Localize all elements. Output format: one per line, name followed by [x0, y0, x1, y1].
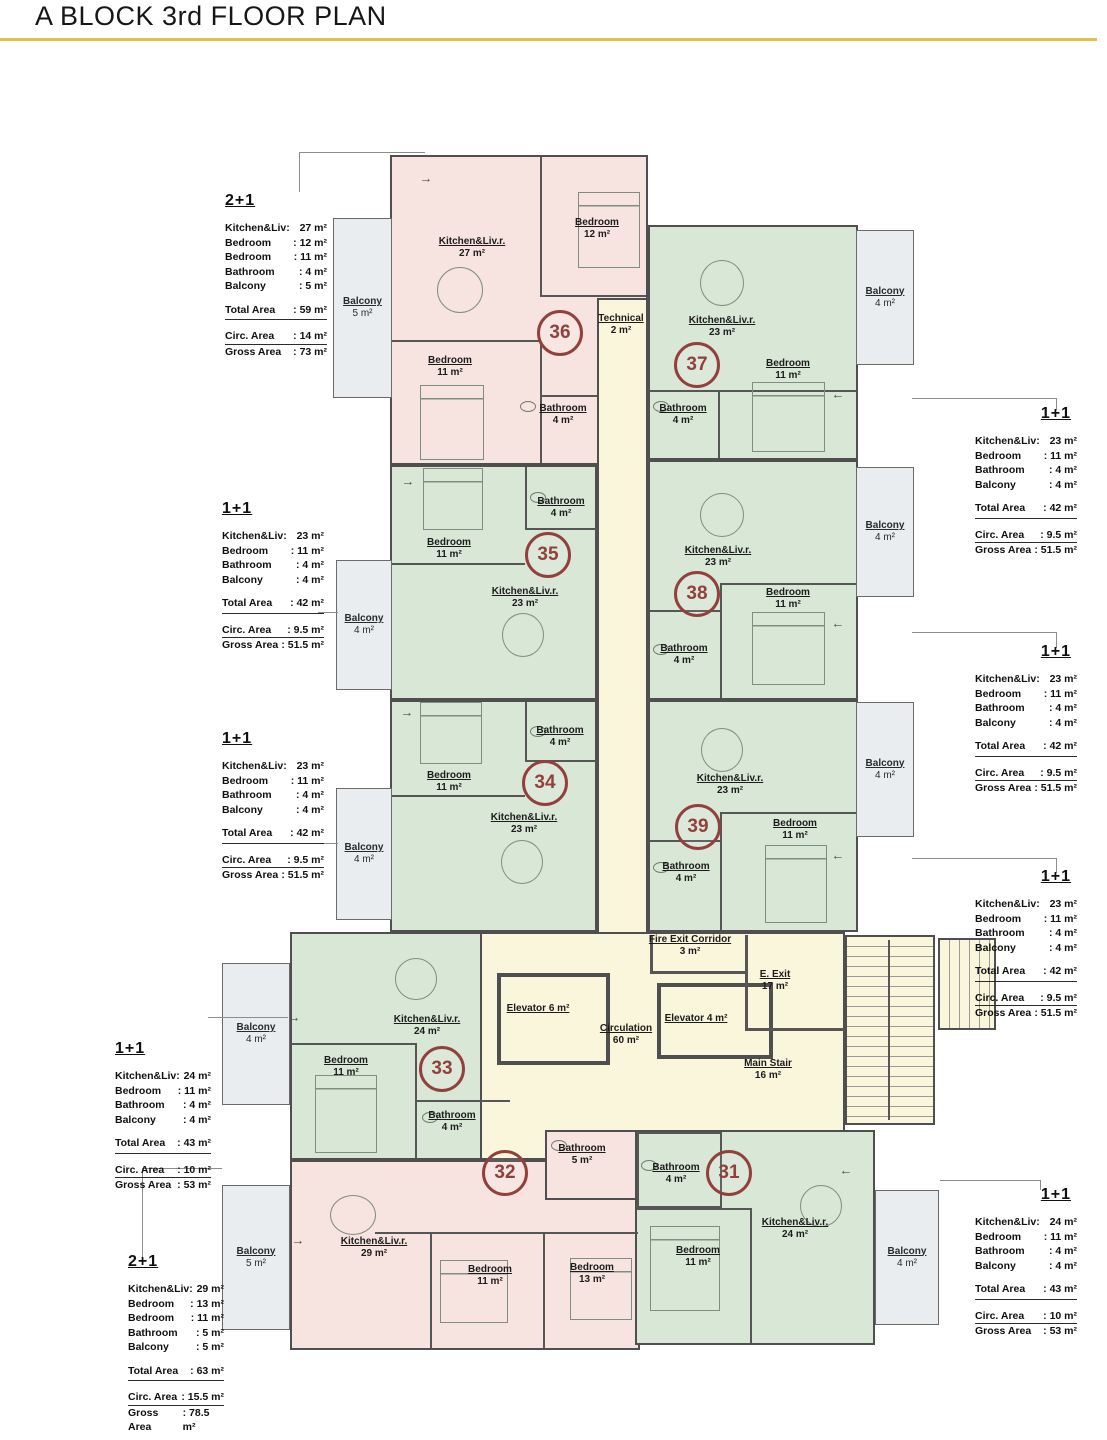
unit-number-38: 38 [674, 571, 720, 617]
balcony-label: Balcony 4 m² [866, 758, 905, 782]
room-area-text: 24 m² [394, 1026, 461, 1038]
room-label-u38-bedroom: Bedroom 11 m² [766, 587, 810, 611]
room-label-u31-kitchen: Kitchen&Liv.r. 24 m² [762, 1217, 829, 1241]
spec-value: : 4 m² [1049, 716, 1077, 731]
room-name-text: Bathroom [539, 403, 586, 415]
spec-value: : 11 m² [291, 774, 324, 789]
spec-total-row: Total Area: 59 m² [225, 303, 327, 321]
corridor-region [597, 298, 648, 935]
wall-segment [525, 702, 527, 762]
spec-value: : 42 m² [290, 596, 324, 611]
spec-value: : 15.5 m² [181, 1390, 224, 1405]
room-label-u36-bathroom: Bathroom 4 m² [539, 403, 586, 427]
entry-arrow-icon: → [420, 171, 433, 186]
room-name-text: Kitchen&Liv.r. [685, 545, 752, 557]
unit-type-label: 1+1 [222, 500, 324, 518]
unit-number-33: 33 [419, 1046, 465, 1092]
entry-arrow-icon: ← [832, 848, 845, 863]
room-name-text: Bathroom [662, 861, 709, 873]
spec-value: : 4 m² [296, 788, 324, 803]
spec-value: : 4 m² [183, 1113, 211, 1128]
spec-value: 23 m² [1050, 897, 1077, 912]
spec-value: : 5 m² [299, 279, 327, 294]
spec-value: : 4 m² [296, 558, 324, 573]
unit-type-label: 1+1 [222, 730, 324, 748]
balcony-area-text: 4 m² [345, 854, 384, 866]
spec-gross-row: Gross Area: 78.5 m² [128, 1406, 224, 1435]
spec-label: Kitchen&Liv: [225, 221, 290, 236]
spec-value: : 42 m² [1043, 501, 1077, 516]
room-area-text: 24 m² [762, 1229, 829, 1241]
spec-row: Balcony: 4 m² [115, 1113, 211, 1128]
spec-row: Bathroom: 5 m² [128, 1326, 224, 1341]
spec-label: Kitchen&Liv: [975, 897, 1040, 912]
spec-row: Bathroom: 4 m² [222, 788, 324, 803]
spec-box-unit36: 2+1 Kitchen&Liv:27 m² Bedroom: 12 m² Bed… [225, 192, 327, 359]
room-name-text: Bathroom [659, 403, 706, 415]
room-area-text: 13 m² [570, 1274, 614, 1286]
spec-value: : 11 m² [178, 1084, 211, 1099]
spec-value: 23 m² [297, 759, 324, 774]
spec-label: Bathroom [222, 558, 272, 573]
spec-label: Bathroom [115, 1098, 165, 1113]
balcony-name-text: Balcony [866, 758, 905, 770]
spec-value: 23 m² [1050, 672, 1077, 687]
spec-label: Bedroom [975, 1230, 1021, 1245]
unit-type-label: 1+1 [115, 1040, 211, 1058]
room-area-text: 12 m² [575, 229, 619, 241]
entry-arrow-icon: ← [832, 616, 845, 631]
spec-row: Kitchen&Liv:23 m² [975, 672, 1077, 687]
spec-label: Gross Area [225, 345, 281, 360]
unit-type-label: 1+1 [975, 405, 1077, 423]
wall-segment [392, 340, 540, 342]
spec-value: : 4 m² [1049, 1244, 1077, 1259]
spec-row: Bedroom: 11 m² [225, 250, 327, 265]
entry-arrow-icon: → [402, 474, 415, 489]
unit-number-36: 36 [537, 310, 583, 356]
wall-segment [543, 1234, 545, 1348]
spec-label: Gross Area [128, 1406, 183, 1435]
main-stair-region [845, 935, 935, 1125]
leader-line [208, 1017, 288, 1018]
room-area-text: 4 m² [536, 737, 583, 749]
spec-value: : 9.5 m² [287, 623, 324, 638]
spec-row: Balcony: 4 m² [975, 478, 1077, 493]
room-area-text: 11 m² [427, 549, 471, 561]
balcony-area-text: 4 m² [866, 770, 905, 782]
spec-gross-row: Gross Area: 53 m² [115, 1178, 211, 1193]
spec-total-row: Total Area: 42 m² [975, 501, 1077, 519]
spec-value: : 10 m² [177, 1163, 211, 1178]
spec-value: : 11 m² [1044, 687, 1077, 702]
balcony-label: Balcony 4 m² [888, 1246, 927, 1270]
spec-row: Balcony: 4 m² [975, 941, 1077, 956]
wall-segment [540, 295, 646, 297]
balcony-area-text: 4 m² [237, 1034, 276, 1046]
spec-circ-row: Circ. Area: 9.5 m² [975, 766, 1077, 782]
room-area-text: 17 m² [760, 981, 791, 993]
balcony-unit37: Balcony 4 m² [856, 230, 914, 365]
spec-label: Total Area [128, 1364, 178, 1379]
spec-row: Bathroom: 4 m² [225, 265, 327, 280]
balcony-unit39: Balcony 4 m² [856, 702, 914, 837]
room-label-u33-bedroom: Bedroom 11 m² [324, 1055, 368, 1079]
wall-segment [415, 1100, 510, 1102]
spec-value: : 42 m² [1043, 964, 1077, 979]
spec-gross-row: Gross Area: 51.5 m² [222, 638, 324, 653]
room-name-text: Bathroom [536, 725, 583, 737]
spec-label: Bedroom [975, 912, 1021, 927]
spec-row: Bathroom: 4 m² [975, 701, 1077, 716]
stair-divider-wall [888, 940, 890, 1120]
spec-circ-row: Circ. Area: 15.5 m² [128, 1390, 224, 1406]
spec-label: Kitchen&Liv: [975, 672, 1040, 687]
spec-value: : 9.5 m² [1040, 991, 1077, 1006]
unit-type-label: 1+1 [975, 868, 1077, 886]
spec-value: : 5 m² [196, 1326, 224, 1341]
spec-row: Balcony: 5 m² [225, 279, 327, 294]
room-name-text: Main Stair [744, 1058, 792, 1070]
spec-gross-row: Gross Area: 73 m² [225, 345, 327, 360]
room-label-u35-bathroom: Bathroom 4 m² [537, 496, 584, 520]
room-name-text: Circulation [600, 1023, 652, 1035]
spec-row: Kitchen&Liv:23 m² [975, 897, 1077, 912]
wall-segment [720, 585, 722, 698]
room-label-u37-bathroom: Bathroom 4 m² [659, 403, 706, 427]
room-name-text: E. Exit [760, 969, 791, 981]
spec-row: Balcony: 5 m² [128, 1340, 224, 1355]
balcony-unit31: Balcony 4 m² [875, 1190, 939, 1325]
spec-label: Bedroom [975, 687, 1021, 702]
room-label-elevator-4: Elevator 4 m² [665, 1013, 728, 1025]
room-label-technical: Technical 2 m² [598, 313, 643, 337]
spec-gross-row: Gross Area: 51.5 m² [975, 1006, 1077, 1021]
spec-label: Bedroom [222, 774, 268, 789]
room-area-text: 11 m² [766, 599, 810, 611]
spec-label: Balcony [975, 478, 1016, 493]
room-name-text: Bedroom [468, 1264, 512, 1276]
spec-label: Total Area [225, 303, 275, 318]
spec-label: Kitchen&Liv: [115, 1069, 180, 1084]
dining-table-icon [395, 958, 437, 1000]
spec-row: Kitchen&Liv:27 m² [225, 221, 327, 236]
spec-label: Bathroom [222, 788, 272, 803]
room-area-text: 11 m² [468, 1276, 512, 1288]
room-label-u31-bathroom: Bathroom 4 m² [652, 1162, 699, 1186]
spec-label: Bathroom [975, 463, 1025, 478]
balcony-label: Balcony 4 m² [345, 613, 384, 637]
spec-label: Circ. Area [222, 623, 271, 638]
room-name-text: Elevator 6 m² [507, 1003, 570, 1015]
spec-label: Gross Area [975, 1324, 1031, 1339]
spec-circ-row: Circ. Area: 14 m² [225, 329, 327, 345]
spec-row: Balcony: 4 m² [975, 1259, 1077, 1274]
spec-row: Kitchen&Liv:29 m² [128, 1282, 224, 1297]
spec-label: Gross Area [222, 638, 278, 653]
balcony-area-text: 4 m² [888, 1258, 927, 1270]
balcony-area-text: 4 m² [866, 298, 905, 310]
spec-label: Total Area [975, 1282, 1025, 1297]
room-label-u32-bathroom: Bathroom 5 m² [558, 1143, 605, 1167]
dining-table-icon [502, 613, 544, 657]
room-name-text: Kitchen&Liv.r. [491, 812, 558, 824]
toilet-icon [520, 401, 536, 412]
spec-circ-row: Circ. Area: 9.5 m² [975, 528, 1077, 544]
room-label-u36-kitchen: Kitchen&Liv.r. 27 m² [439, 236, 506, 260]
balcony-name-text: Balcony [345, 613, 384, 625]
balcony-name-text: Balcony [345, 842, 384, 854]
spec-value: 29 m² [197, 1282, 224, 1297]
dining-table-icon [700, 493, 744, 537]
spec-label: Bedroom [222, 544, 268, 559]
room-name-text: Bathroom [558, 1143, 605, 1155]
spec-label: Bathroom [225, 265, 275, 280]
room-area-text: 29 m² [341, 1248, 408, 1260]
spec-value: : 11 m² [1044, 912, 1077, 927]
wall-segment [745, 935, 748, 1030]
room-label-u34-kitchen: Kitchen&Liv.r. 23 m² [491, 812, 558, 836]
elevator-6-shaft [497, 973, 610, 1065]
spec-box-unit31: 1+1 Kitchen&Liv:24 m² Bedroom: 11 m² Bat… [975, 1186, 1077, 1339]
spec-value: : 51.5 m² [281, 638, 324, 653]
room-label-u39-bedroom: Bedroom 11 m² [773, 818, 817, 842]
spec-value: : 63 m² [190, 1364, 224, 1379]
spec-box-unit37: 1+1 Kitchen&Liv:23 m² Bedroom: 11 m² Bat… [975, 405, 1077, 558]
spec-box-unit34: 1+1 Kitchen&Liv:23 m² Bedroom: 11 m² Bat… [222, 730, 324, 883]
room-name-text: Kitchen&Liv.r. [439, 236, 506, 248]
dining-table-icon [501, 840, 543, 884]
entry-arrow-icon: ← [832, 387, 845, 402]
spec-value: : 4 m² [183, 1098, 211, 1113]
room-name-text: Bedroom [570, 1262, 614, 1274]
spec-label: Circ. Area [975, 991, 1024, 1006]
entry-arrow-icon: → [288, 1010, 301, 1025]
room-area-text: 11 m² [428, 367, 472, 379]
room-label-u32-bedroom11: Bedroom 11 m² [468, 1264, 512, 1288]
wall-segment [392, 563, 525, 565]
spec-value: : 12 m² [293, 236, 327, 251]
spec-row: Bathroom: 4 m² [975, 926, 1077, 941]
spec-row: Bedroom: 11 m² [115, 1084, 211, 1099]
balcony-area-text: 5 m² [343, 308, 382, 320]
spec-value: : 51.5 m² [1034, 1006, 1077, 1021]
title-underline [0, 38, 1097, 41]
wall-segment [750, 1208, 752, 1343]
spec-circ-row: Circ. Area: 9.5 m² [975, 991, 1077, 1007]
room-name-text: Kitchen&Liv.r. [762, 1217, 829, 1229]
balcony-unit35: Balcony 4 m² [336, 560, 392, 690]
unit-type-label: 2+1 [128, 1253, 224, 1271]
spec-value: : 43 m² [177, 1136, 211, 1151]
spec-total-row: Total Area: 43 m² [975, 1282, 1077, 1300]
room-area-text: 23 m² [685, 557, 752, 569]
room-label-fire-exit-corridor: Fire Exit Corridor 3 m² [649, 934, 731, 958]
room-label-u33-kitchen: Kitchen&Liv.r. 24 m² [394, 1014, 461, 1038]
spec-value: : 11 m² [291, 544, 324, 559]
room-label-u37-bedroom: Bedroom 11 m² [766, 358, 810, 382]
room-area-text: 11 m² [766, 370, 810, 382]
dining-table-icon [330, 1195, 376, 1235]
balcony-unit36: Balcony 5 m² [333, 218, 392, 398]
wall-segment [430, 1232, 432, 1348]
spec-value: : 4 m² [1049, 926, 1077, 941]
room-area-text: 5 m² [558, 1155, 605, 1167]
room-name-text: Fire Exit Corridor [649, 934, 731, 946]
room-name-text: Elevator 4 m² [665, 1013, 728, 1025]
spec-row: Bedroom: 11 m² [222, 544, 324, 559]
room-area-text: 23 m² [491, 824, 558, 836]
spec-row: Kitchen&Liv:24 m² [975, 1215, 1077, 1230]
wall-segment [525, 528, 597, 530]
bed-icon [765, 845, 827, 923]
spec-label: Bedroom [128, 1297, 174, 1312]
room-name-text: Bedroom [676, 1245, 720, 1257]
spec-row: Balcony: 4 m² [222, 573, 324, 588]
wall-segment [720, 812, 856, 814]
balcony-label: Balcony 4 m² [866, 286, 905, 310]
spec-value: : 4 m² [299, 265, 327, 280]
room-label-u32-kitchen: Kitchen&Liv.r. 29 m² [341, 1236, 408, 1260]
unit-number-39: 39 [675, 804, 721, 850]
balcony-unit32: Balcony 5 m² [222, 1185, 290, 1330]
wall-segment [745, 1028, 845, 1031]
bed-icon [315, 1075, 377, 1153]
spec-row: Bedroom: 11 m² [975, 687, 1077, 702]
bed-icon [752, 612, 825, 685]
spec-value: : 4 m² [1049, 463, 1077, 478]
spec-gross-row: Gross Area: 51.5 m² [222, 868, 324, 883]
leader-line [912, 632, 1056, 633]
spec-value: : 9.5 m² [287, 853, 324, 868]
spec-gross-row: Gross Area: 53 m² [975, 1324, 1077, 1339]
spec-label: Circ. Area [975, 766, 1024, 781]
wall-segment [650, 971, 745, 974]
balcony-name-text: Balcony [237, 1022, 276, 1034]
spec-box-unit32: 2+1 Kitchen&Liv:29 m² Bedroom: 13 m² Bed… [128, 1253, 224, 1435]
unit-type-label: 2+1 [225, 192, 327, 210]
spec-row: Balcony: 4 m² [975, 716, 1077, 731]
spec-label: Balcony [975, 1259, 1016, 1274]
leader-line [912, 398, 1056, 399]
wall-segment [540, 395, 597, 397]
spec-label: Circ. Area [975, 528, 1024, 543]
spec-value: : 11 m² [1044, 1230, 1077, 1245]
spec-row: Kitchen&Liv:23 m² [222, 759, 324, 774]
room-label-circulation: Circulation 60 m² [600, 1023, 652, 1047]
spec-row: Bedroom: 11 m² [128, 1311, 224, 1326]
spec-label: Gross Area [975, 781, 1031, 796]
spec-label: Circ. Area [222, 853, 271, 868]
balcony-name-text: Balcony [866, 520, 905, 532]
wall-segment [718, 392, 720, 458]
spec-label: Bathroom [975, 926, 1025, 941]
spec-total-row: Total Area: 42 m² [975, 739, 1077, 757]
spec-label: Total Area [975, 739, 1025, 754]
spec-circ-row: Circ. Area: 9.5 m² [222, 623, 324, 639]
spec-row: Bedroom: 11 m² [975, 1230, 1077, 1245]
room-area-text: 4 m² [428, 1122, 475, 1134]
spec-label: Balcony [225, 279, 266, 294]
unit-number-37: 37 [674, 342, 720, 388]
wall-segment [637, 1208, 752, 1210]
room-area-text: 27 m² [439, 248, 506, 260]
spec-label: Bedroom [225, 250, 271, 265]
spec-value: : 59 m² [293, 303, 327, 318]
spec-value: : 42 m² [290, 826, 324, 841]
room-name-text: Kitchen&Liv.r. [689, 315, 756, 327]
spec-box-unit35: 1+1 Kitchen&Liv:23 m² Bedroom: 11 m² Bat… [222, 500, 324, 653]
room-area-text: 11 m² [773, 830, 817, 842]
balcony-label: Balcony 4 m² [237, 1022, 276, 1046]
spec-label: Bedroom [115, 1084, 161, 1099]
room-name-text: Kitchen&Liv.r. [341, 1236, 408, 1248]
spec-total-row: Total Area: 42 m² [222, 596, 324, 614]
unit-number-35: 35 [525, 532, 571, 578]
spec-value: : 4 m² [296, 803, 324, 818]
leader-line [299, 152, 300, 192]
spec-row: Kitchen&Liv:23 m² [222, 529, 324, 544]
spec-label: Balcony [222, 803, 263, 818]
spec-label: Kitchen&Liv: [975, 434, 1040, 449]
room-area-text: 4 m² [660, 655, 707, 667]
spec-row: Balcony: 4 m² [222, 803, 324, 818]
room-label-u36-bedroom11: Bedroom 11 m² [428, 355, 472, 379]
balcony-unit34: Balcony 4 m² [336, 788, 392, 920]
spec-value: : 11 m² [294, 250, 327, 265]
balcony-area-text: 4 m² [866, 532, 905, 544]
spec-label: Balcony [128, 1340, 169, 1355]
wall-segment [375, 1232, 638, 1234]
spec-label: Bedroom [225, 236, 271, 251]
spec-value: : 4 m² [1049, 701, 1077, 716]
room-label-u38-kitchen: Kitchen&Liv.r. 23 m² [685, 545, 752, 569]
room-label-main-stair: Main Stair 16 m² [744, 1058, 792, 1082]
spec-row: Bedroom: 11 m² [975, 912, 1077, 927]
room-label-e-exit: E. Exit 17 m² [760, 969, 791, 993]
dining-table-icon [437, 267, 483, 313]
spec-label: Circ. Area [115, 1163, 164, 1178]
bed-icon [423, 468, 483, 530]
spec-total-row: Total Area: 63 m² [128, 1364, 224, 1382]
balcony-unit38: Balcony 4 m² [856, 467, 914, 597]
room-area-text: 11 m² [676, 1257, 720, 1269]
room-area-text: 4 m² [537, 508, 584, 520]
leader-line [299, 152, 425, 153]
spec-label: Balcony [975, 941, 1016, 956]
room-name-text: Bedroom [766, 358, 810, 370]
spec-value: 27 m² [300, 221, 327, 236]
spec-label: Total Area [975, 964, 1025, 979]
balcony-label: Balcony 4 m² [866, 520, 905, 544]
room-area-text: 23 m² [689, 327, 756, 339]
spec-label: Bathroom [975, 701, 1025, 716]
wall-segment [540, 157, 542, 297]
room-name-text: Bathroom [428, 1110, 475, 1122]
spec-label: Balcony [222, 573, 263, 588]
room-label-u34-bedroom: Bedroom 11 m² [427, 770, 471, 794]
balcony-name-text: Balcony [237, 1246, 276, 1258]
spec-total-row: Total Area: 42 m² [222, 826, 324, 844]
room-label-u32-bedroom13: Bedroom 13 m² [570, 1262, 614, 1286]
balcony-label: Balcony 5 m² [343, 296, 382, 320]
room-label-u35-kitchen: Kitchen&Liv.r. 23 m² [492, 586, 559, 610]
room-name-text: Bedroom [427, 537, 471, 549]
room-area-text: 4 m² [659, 415, 706, 427]
room-name-text: Technical [598, 313, 643, 325]
spec-row: Bathroom: 4 m² [115, 1098, 211, 1113]
spec-label: Bedroom [128, 1311, 174, 1326]
